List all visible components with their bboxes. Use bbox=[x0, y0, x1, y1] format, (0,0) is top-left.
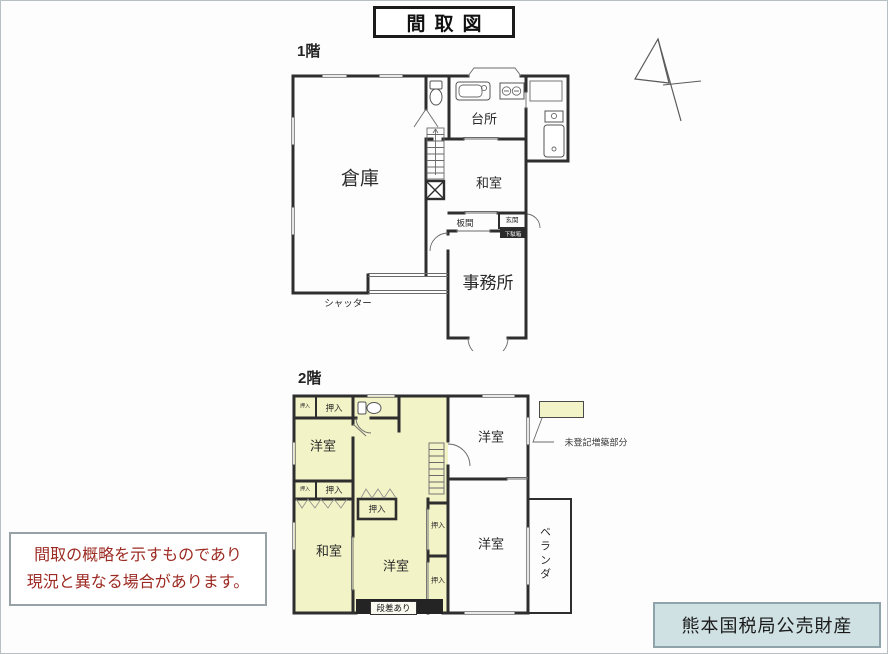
room-yoshitsu-tr: 洋室 bbox=[478, 431, 504, 444]
toilet-icon bbox=[430, 81, 442, 105]
double-door-icon bbox=[414, 109, 438, 127]
kitchen-sink-icon bbox=[456, 82, 490, 100]
stove-icon bbox=[500, 83, 524, 99]
door-arc bbox=[430, 233, 448, 251]
credit-text: 熊本国税局公売財産 bbox=[682, 612, 853, 638]
closet-oshiire: 押入 bbox=[368, 505, 385, 514]
disclaimer-line1: 間取の概略を示すものであり bbox=[34, 542, 242, 569]
north-arrow-icon bbox=[616, 26, 711, 131]
floor2-label: 2階 bbox=[298, 367, 321, 388]
room-washitsu-1f: 和室 bbox=[476, 177, 502, 190]
closet-oshiire: 押入 bbox=[325, 404, 342, 413]
closet-oshiire-small: 押入 bbox=[300, 488, 310, 493]
dansa-ari-label: 段差あり bbox=[370, 601, 417, 615]
room-veranda: ベランダ bbox=[539, 526, 550, 582]
door-arc bbox=[448, 444, 470, 466]
legend-callout-line bbox=[533, 418, 554, 442]
room-yoshitsu-tl: 洋室 bbox=[310, 440, 336, 453]
room-jimusho: 事務所 bbox=[463, 275, 514, 292]
room-genkan: 玄関 bbox=[506, 218, 519, 225]
floor2-plan: 未登記増築部分 押入 押入 洋室 押入 押入 押入 和室 洋室 押入 押入 洋室… bbox=[286, 386, 641, 621]
room-washitsu-2f: 和室 bbox=[316, 545, 342, 558]
page-title: 間取図 bbox=[373, 6, 515, 38]
bay-window bbox=[468, 68, 521, 76]
room-souko: 倉庫 bbox=[341, 170, 379, 189]
credit-box: 熊本国税局公売財産 bbox=[653, 602, 881, 648]
page-title-text: 間取図 bbox=[397, 9, 490, 36]
room-yoshitsu-br: 洋室 bbox=[478, 538, 504, 551]
shutter-label: シャッター bbox=[324, 299, 372, 309]
toilet-icon bbox=[358, 402, 381, 414]
closet-oshiire: 押入 bbox=[325, 486, 342, 495]
closet-oshiire-small: 押入 bbox=[300, 405, 310, 410]
closet-oshiire: 押入 bbox=[431, 523, 445, 530]
washbasin-icon bbox=[545, 111, 563, 122]
floor1-label: 1階 bbox=[297, 40, 320, 61]
stairs-icon bbox=[427, 128, 444, 179]
entrance-double-door-icon bbox=[468, 338, 508, 351]
legend-label: 未登記増築部分 bbox=[564, 439, 627, 448]
x-box-icon bbox=[426, 181, 444, 199]
shoe-cabinet-tag: 下駄箱 bbox=[500, 229, 526, 238]
room-yoshitsu-center: 洋室 bbox=[383, 560, 409, 573]
floor1-plan: 倉庫 台所 和室 板間 玄関 下駄箱 事務所 シャッター bbox=[286, 61, 576, 351]
closet-oshiire: 押入 bbox=[431, 578, 445, 585]
floor2-walls bbox=[286, 386, 641, 621]
room-daidokoro: 台所 bbox=[471, 113, 497, 126]
floorplan-page: 間取図 1階 2階 bbox=[0, 0, 888, 654]
bathtub-icon bbox=[544, 125, 564, 157]
legend-swatch bbox=[539, 401, 584, 418]
shutter-opening bbox=[368, 274, 448, 294]
disclaimer-line2: 現況と異なる場合があります。 bbox=[27, 569, 249, 596]
storage-counter bbox=[530, 81, 562, 101]
room-itanoma: 板間 bbox=[456, 219, 473, 228]
disclaimer-box: 間取の概略を示すものであり 現況と異なる場合があります。 bbox=[9, 532, 267, 606]
